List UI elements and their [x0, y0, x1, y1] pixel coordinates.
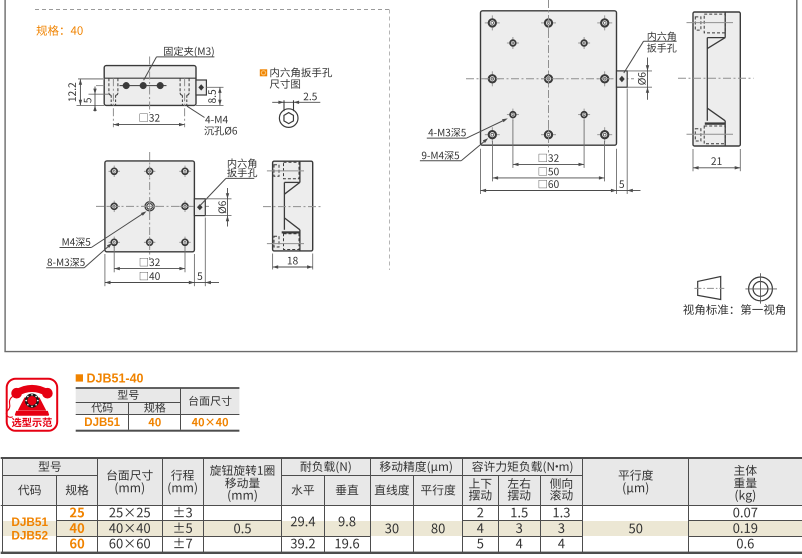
svg-text:DJB51: DJB51 — [11, 515, 48, 529]
svg-text:DJB52: DJB52 — [11, 529, 48, 543]
svg-text:DJB51: DJB51 — [84, 417, 120, 429]
svg-text:DJB51-40: DJB51-40 — [87, 371, 144, 385]
